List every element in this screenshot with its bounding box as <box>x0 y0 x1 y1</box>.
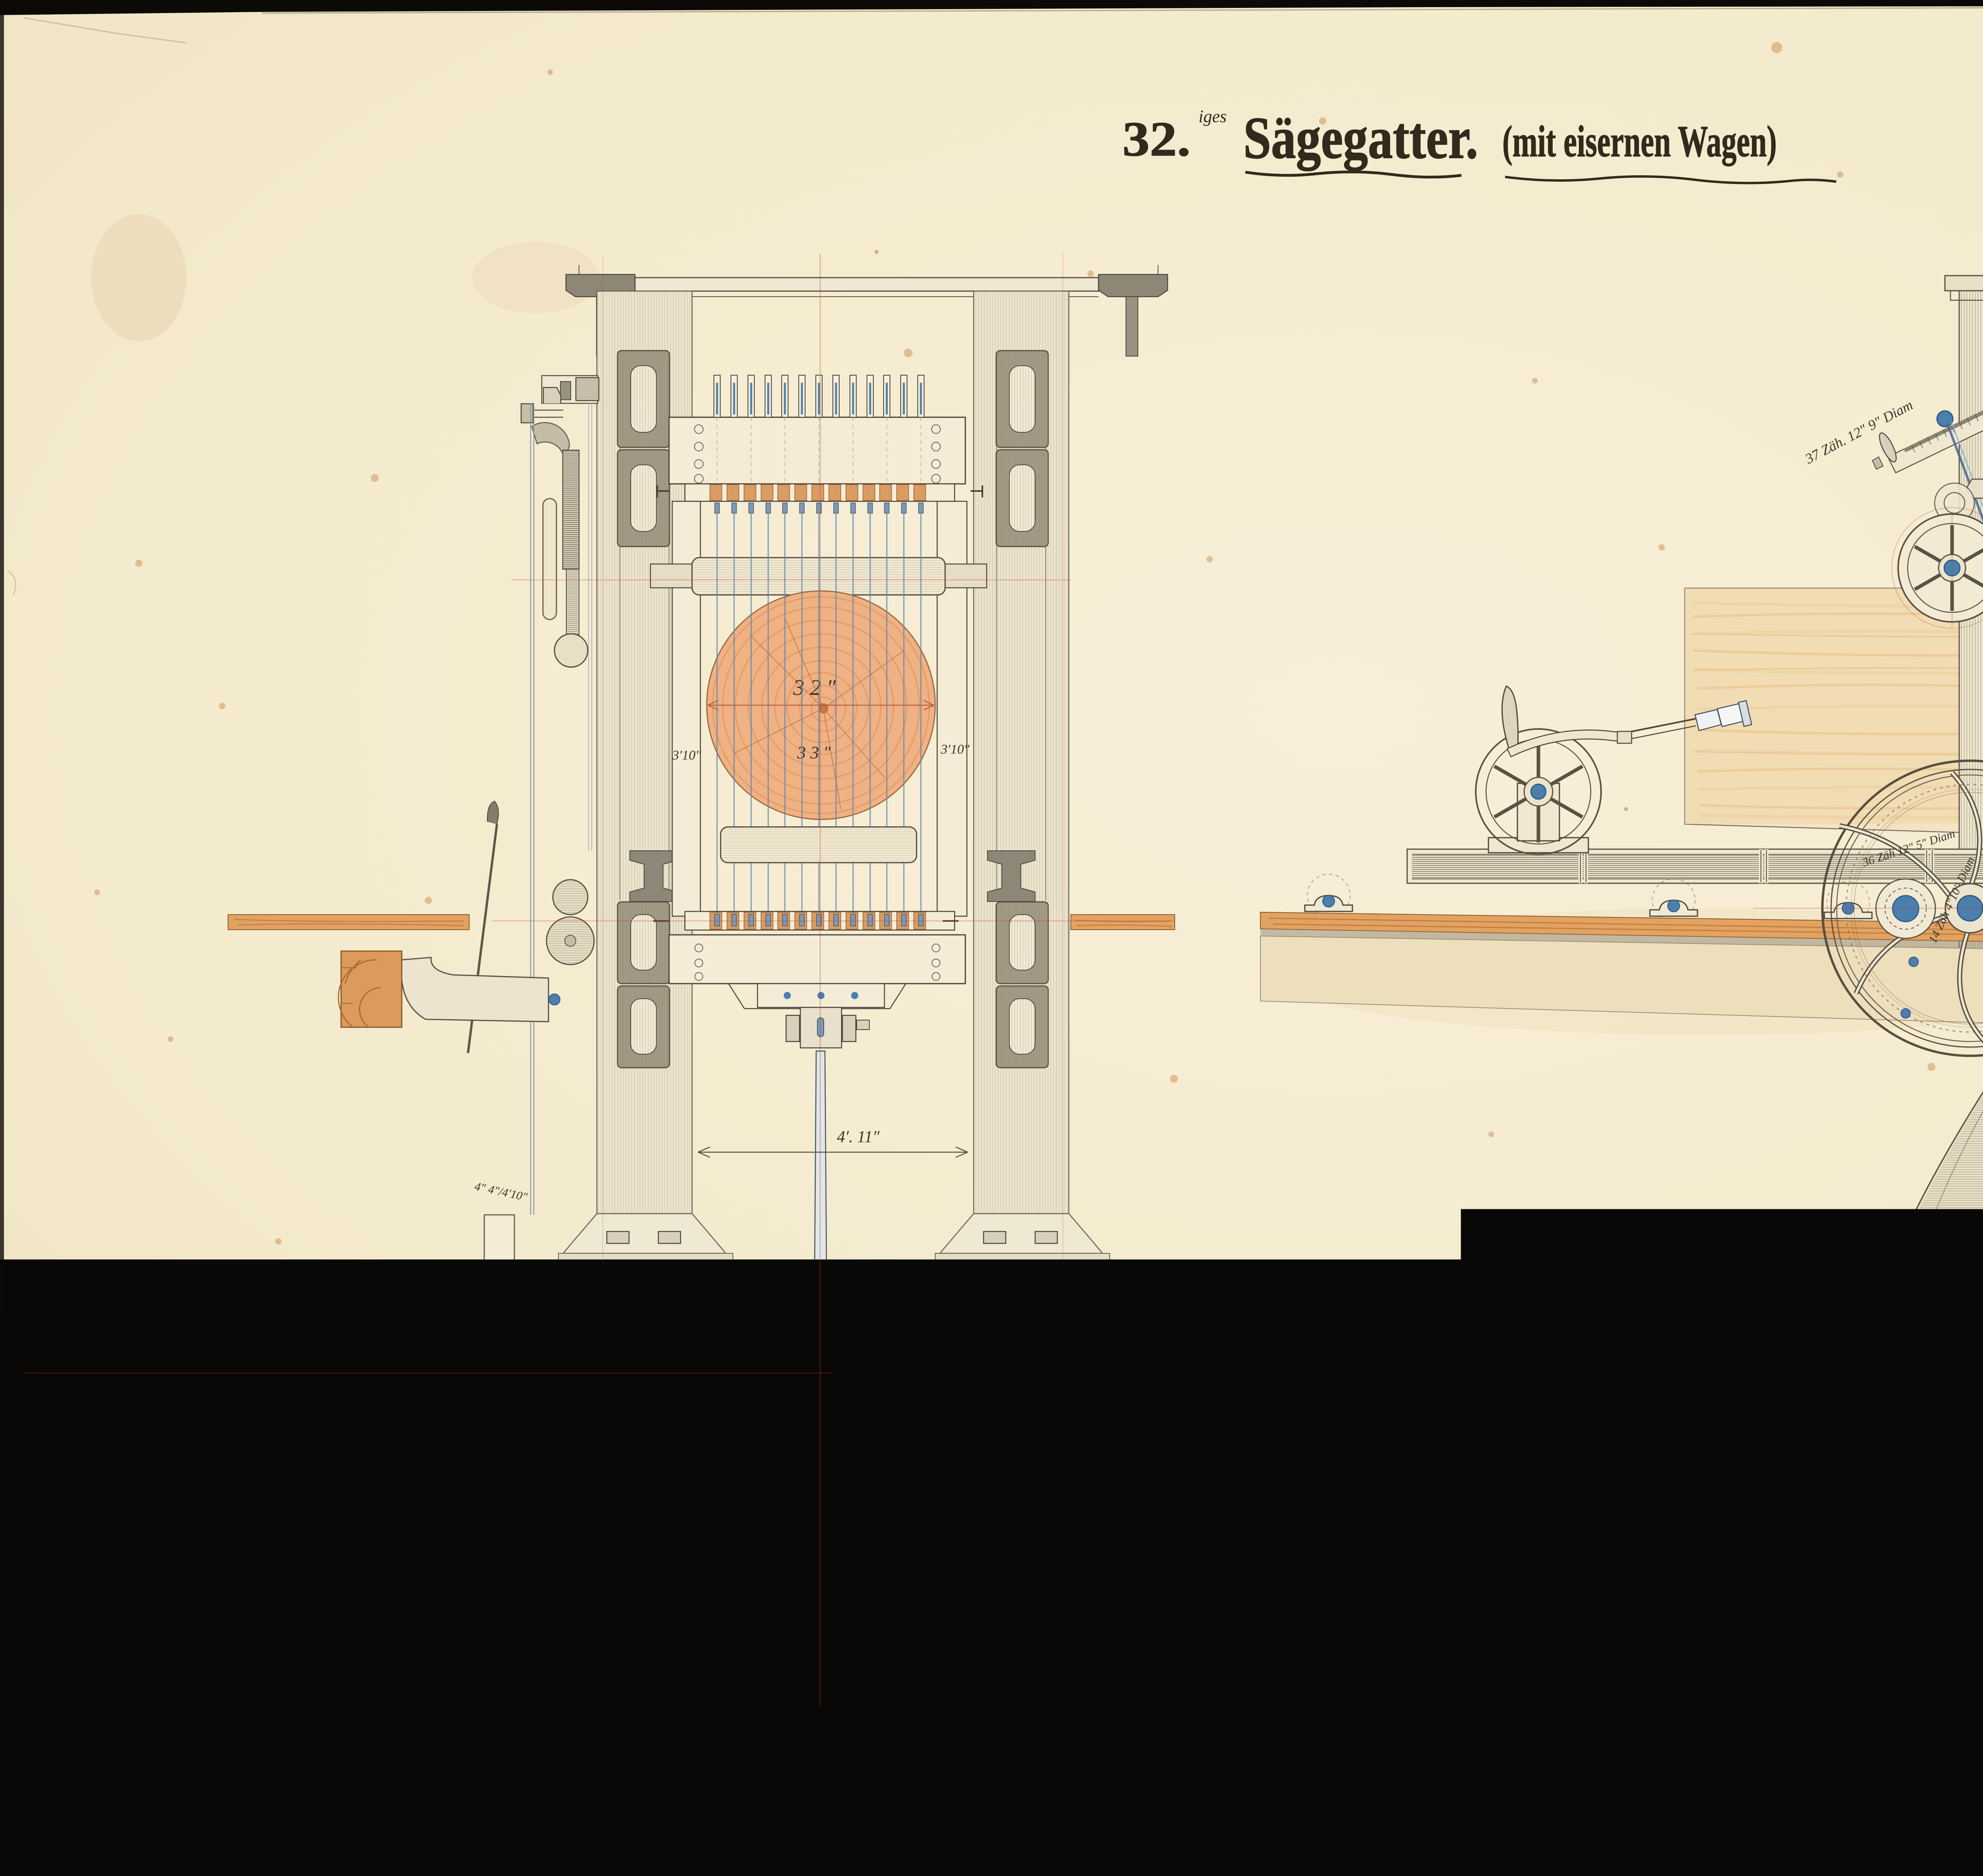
svg-text:iges: iges <box>1199 107 1227 126</box>
svg-text:9′: 9′ <box>1781 1795 1789 1808</box>
svg-text:2.′: 2.′ <box>1184 1798 1196 1811</box>
svg-text:0.: 0. <box>1025 1802 1034 1815</box>
svg-text:4′. 11″: 4′. 11″ <box>837 1128 880 1146</box>
svg-text:3.′: 3.′ <box>1269 1797 1281 1811</box>
svg-text:32.: 32. <box>1122 112 1191 166</box>
svg-text:9″: 9″ <box>956 1804 965 1814</box>
svg-text:3″: 3″ <box>1007 1804 1016 1814</box>
svg-text:12″: 12″ <box>925 1799 939 1809</box>
svg-text:5′: 5′ <box>1440 1797 1448 1810</box>
svg-text:3′10″: 3′10″ <box>940 742 970 757</box>
svg-text:10′: 10′ <box>1864 1795 1879 1808</box>
svg-text:6″: 6″ <box>984 1799 993 1809</box>
svg-text:8′: 8′ <box>1695 1795 1704 1809</box>
svg-text:11′: 11′ <box>1951 1794 1965 1807</box>
svg-text:6′: 6′ <box>1525 1796 1534 1809</box>
svg-text:7′: 7′ <box>1610 1796 1619 1809</box>
svg-text:Sägegatter.: Sägegatter. <box>1243 105 1478 171</box>
svg-text:1.′: 1.′ <box>1099 1802 1110 1815</box>
svg-text:(mit eisernen Wagen): (mit eisernen Wagen) <box>1502 117 1777 166</box>
svg-text:1″ = 1 Wien: Maaßs: 1″ = 1 Wien: Maaßs <box>1969 1810 1983 1829</box>
svg-text:3 2 ″: 3 2 ″ <box>793 675 836 700</box>
svg-text:3′10″: 3′10″ <box>672 748 701 763</box>
